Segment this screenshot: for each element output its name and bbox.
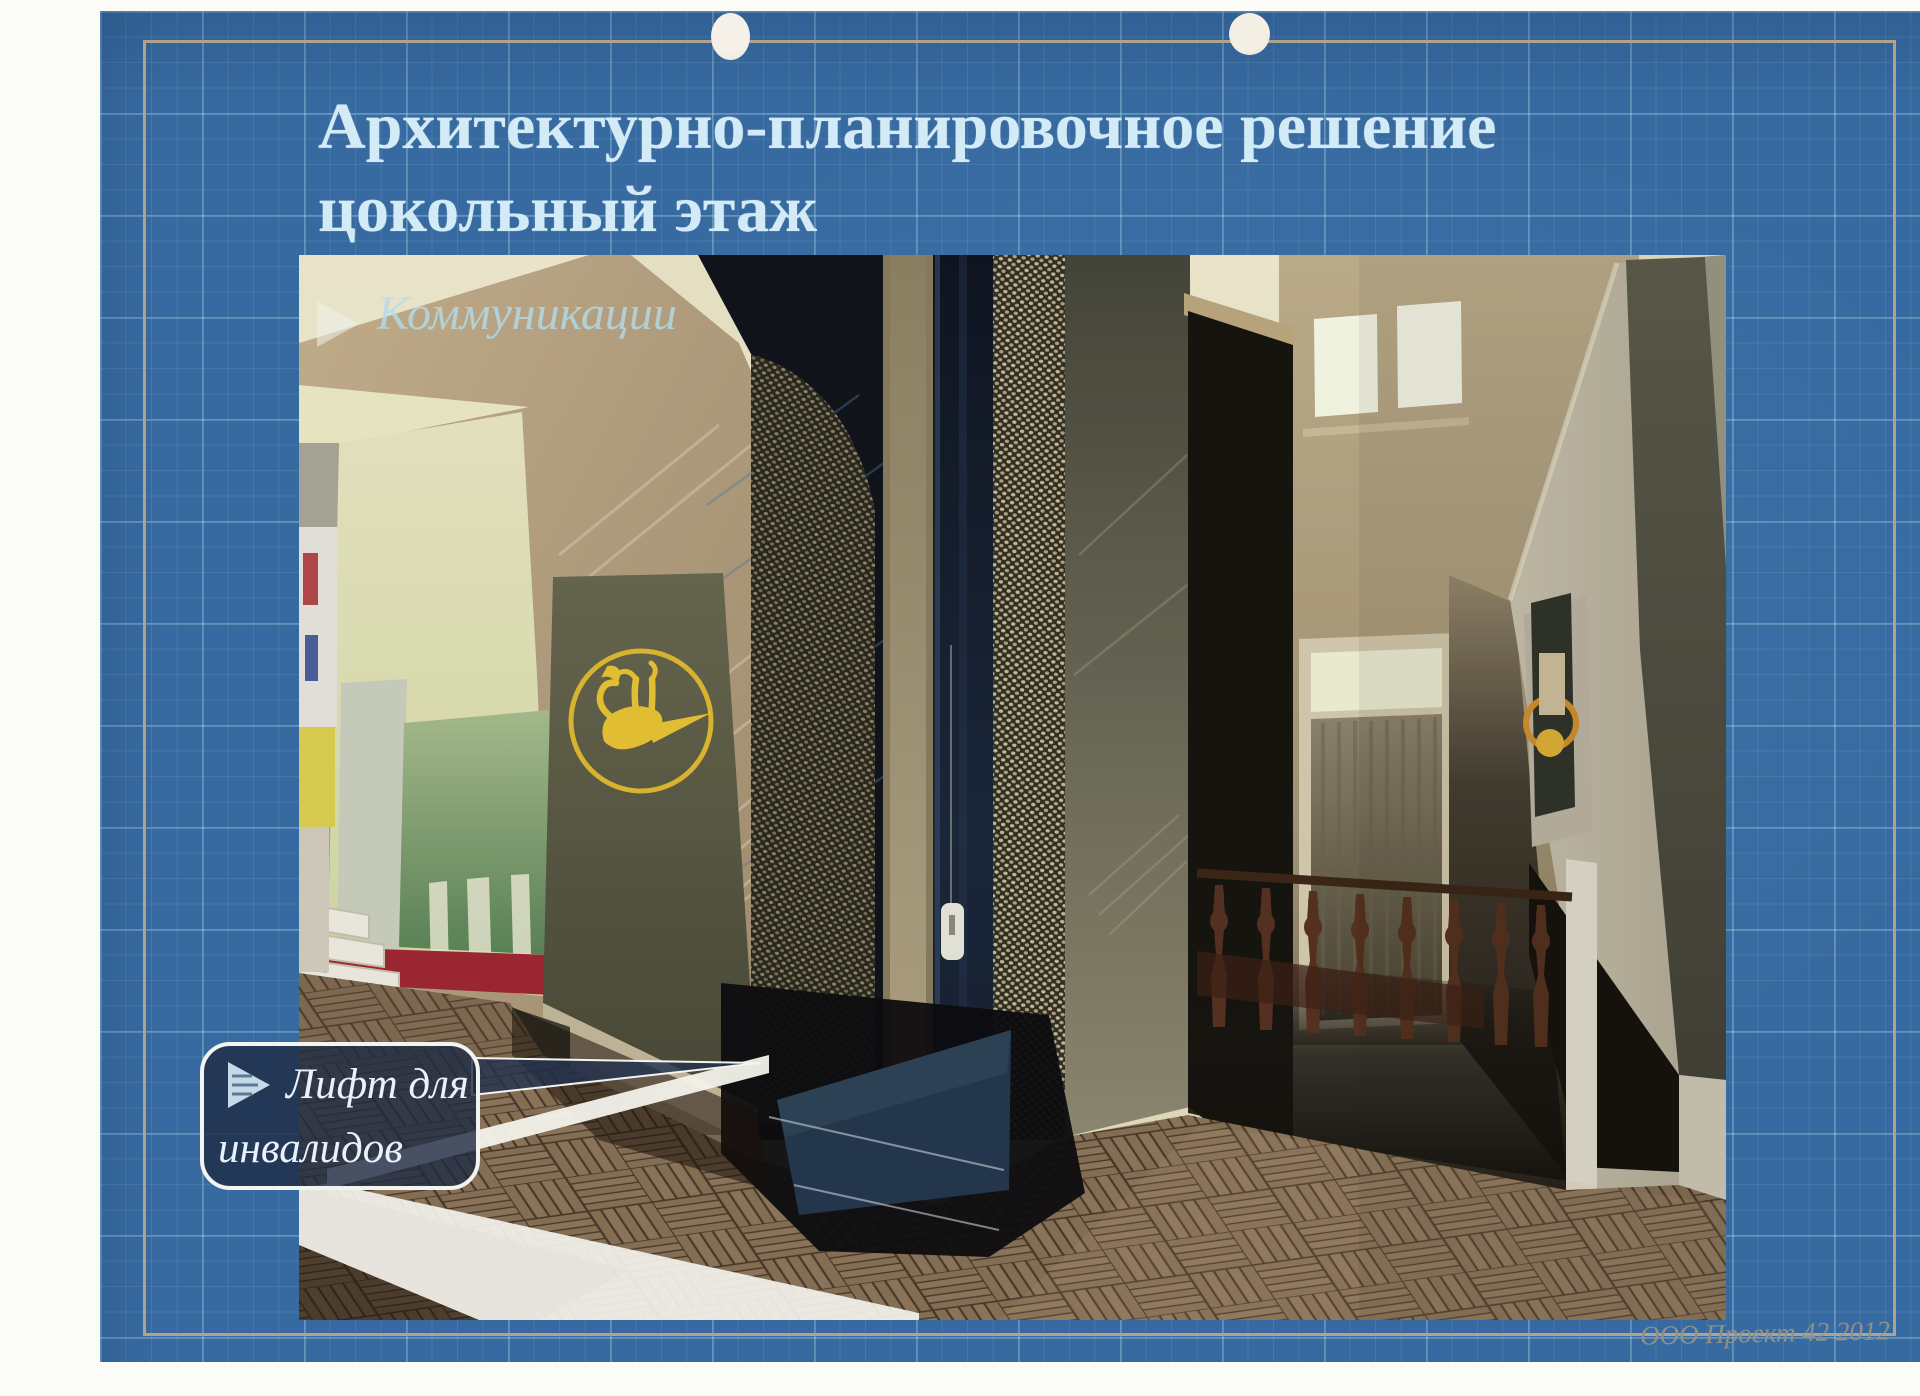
- svg-text:Коммуникации: Коммуникации: [376, 287, 677, 340]
